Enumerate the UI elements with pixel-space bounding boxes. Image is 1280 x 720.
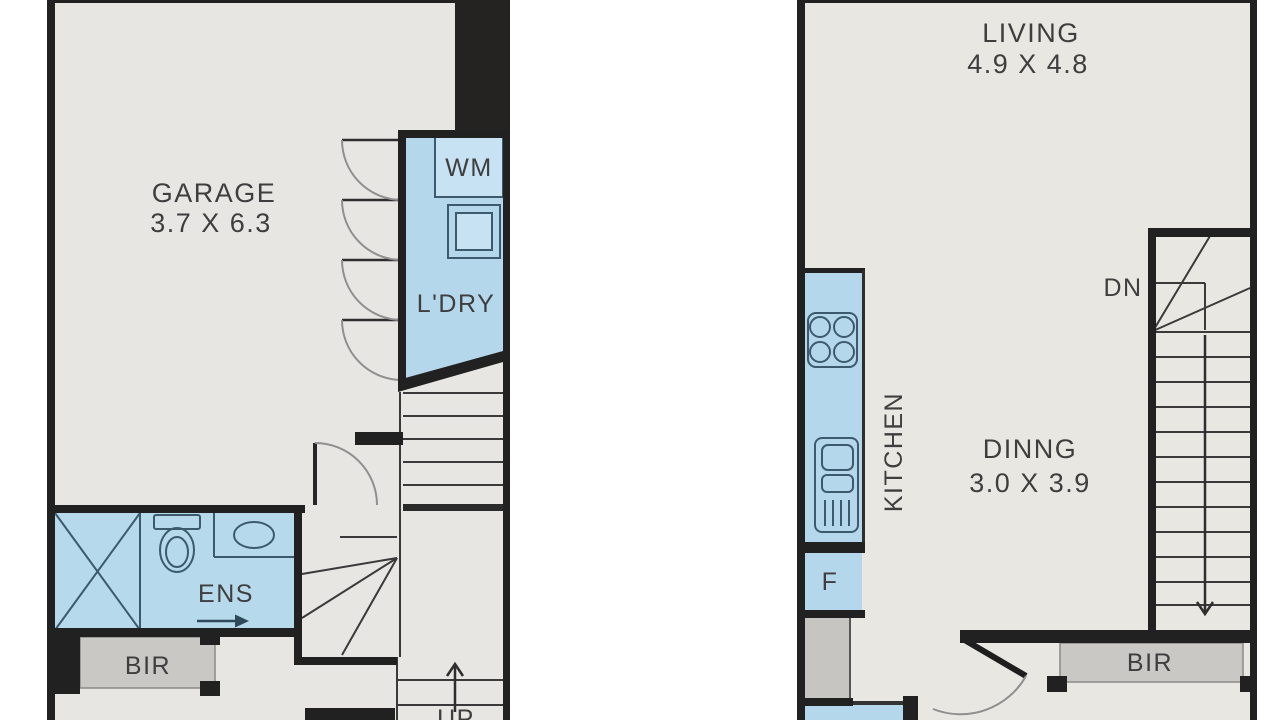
dining-label: DINNG bbox=[983, 434, 1078, 464]
first-floor-plan: LIVING 4.9 X 4.8 KITCHEN F DINNG 3.0 X 3… bbox=[797, 0, 1257, 720]
robe-first-label: BIR bbox=[1127, 649, 1173, 677]
garage-label: GARAGE bbox=[152, 178, 277, 208]
floorplan-page: GARAGE 3.7 X 6.3 WM L'DRY ENS BIR UP bbox=[0, 0, 1280, 720]
living-label: LIVING bbox=[982, 18, 1080, 48]
kitchen-label: KITCHEN bbox=[880, 392, 908, 512]
ground-floor-plan: GARAGE 3.7 X 6.3 WM L'DRY ENS BIR UP bbox=[47, 0, 510, 720]
washing-machine-label: WM bbox=[445, 154, 492, 182]
garage-dimensions: 3.7 X 6.3 bbox=[150, 208, 272, 238]
laundry-label: L'DRY bbox=[417, 290, 496, 318]
floorplan-drawing: GARAGE 3.7 X 6.3 WM L'DRY ENS BIR UP bbox=[0, 0, 1280, 720]
ensuite-label: ENS bbox=[198, 580, 254, 608]
living-dimensions: 4.9 X 4.8 bbox=[967, 49, 1089, 79]
stairs-dn-label: DN bbox=[1103, 274, 1142, 302]
fridge-label: F bbox=[822, 568, 839, 596]
dining-dimensions: 3.0 X 3.9 bbox=[969, 468, 1091, 498]
living-floor bbox=[797, 0, 1257, 720]
pantry-cupboard bbox=[805, 618, 850, 698]
bathroom-floor-partial bbox=[805, 705, 903, 720]
stairs-up-label: UP bbox=[437, 705, 475, 720]
robe-ground-label: BIR bbox=[125, 652, 171, 680]
stair-landing-edge bbox=[403, 504, 503, 511]
laundry-tub-inner bbox=[456, 213, 492, 250]
